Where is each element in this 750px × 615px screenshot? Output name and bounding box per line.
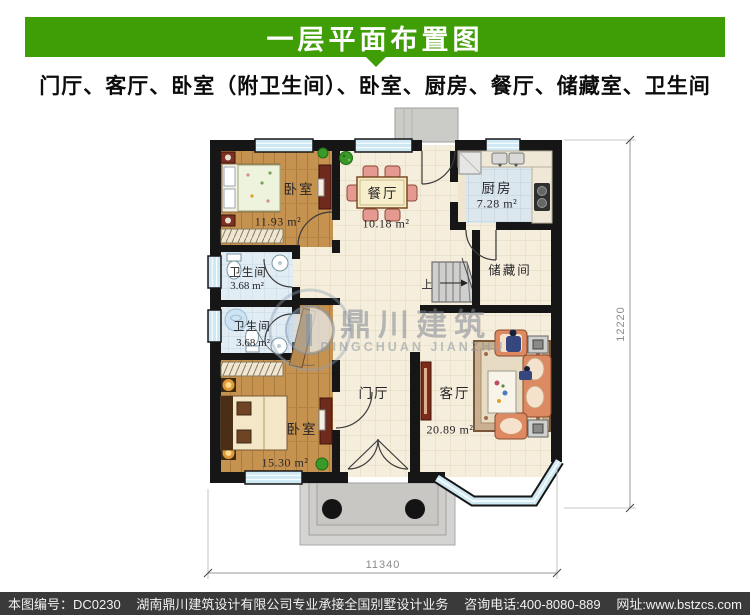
sink	[509, 153, 524, 164]
top-terrace	[395, 108, 458, 142]
footer-bar: 本图编号：DC0230 湖南鼎川建筑设计有限公司专业承接全国别墅设计业务 咨询电…	[0, 592, 750, 615]
entry-porch-steps	[300, 483, 455, 545]
person	[510, 330, 517, 337]
watermark-cn: 鼎川建筑	[340, 300, 492, 345]
window	[208, 310, 221, 342]
room-label-bath-top: 卫生间	[229, 264, 267, 280]
coffee-table	[488, 371, 516, 413]
sink	[492, 153, 507, 164]
foyer-cabinet	[421, 362, 431, 420]
room-label-living: 客厅	[440, 382, 471, 402]
plant-icon	[340, 152, 353, 165]
area-label-living: 20.89 m²	[427, 423, 474, 438]
footer-website: 网址:www.bstzcs.com	[616, 594, 742, 613]
room-label-kitchen: 厨房	[482, 177, 513, 197]
area-label-bedroom-bottom: 15.30 m²	[262, 456, 309, 471]
area-label-kitchen: 7.28 m²	[477, 197, 517, 212]
watermark-en: DINGCHUAN JIANZHU	[320, 340, 505, 354]
area-label-bath-top: 3.68 m²	[230, 280, 264, 292]
wardrobe	[221, 229, 283, 243]
banner-pointer	[366, 57, 386, 67]
room-list-subtitle: 门厅、客厅、卧室（附卫生间）、卧室、厨房、餐厅、储藏室、卫生间	[0, 70, 750, 100]
area-label-dining: 10.18 m²	[363, 217, 410, 232]
room-label-bedroom-top: 卧室	[284, 178, 315, 198]
dimension-height-label: 12220	[615, 306, 627, 342]
footer-phone: 咨询电话:400-8080-889	[464, 594, 601, 613]
room-label-dining: 餐厅	[368, 182, 399, 202]
dimension-width-label: 11340	[366, 559, 401, 571]
porch-column	[322, 499, 342, 519]
area-label-bedroom-top: 11.93 m²	[255, 215, 302, 230]
porch-column	[405, 499, 425, 519]
window	[255, 139, 313, 152]
page-title: 一层平面布置图	[267, 18, 484, 57]
window	[486, 139, 520, 152]
room-label-bedroom-bottom: 卧室	[287, 418, 318, 438]
room-label-foyer: 门厅	[359, 382, 390, 402]
room-label-storage: 储藏间	[488, 260, 532, 279]
title-banner: 一层平面布置图	[25, 17, 725, 57]
window	[245, 471, 302, 484]
footer-plan-number: 本图编号：DC0230	[8, 594, 121, 613]
area-label-bath-bottom: 3.68 m²	[236, 337, 270, 349]
footer-company: 湖南鼎川建筑设计有限公司专业承接全国别墅设计业务	[136, 594, 448, 613]
window	[208, 256, 221, 288]
plant-icon	[318, 148, 328, 158]
room-label-bath-bottom: 卫生间	[233, 318, 271, 334]
wardrobe	[221, 362, 283, 376]
plant-icon	[316, 458, 328, 470]
window	[355, 139, 412, 152]
stairs-up-label: 上	[422, 276, 433, 292]
